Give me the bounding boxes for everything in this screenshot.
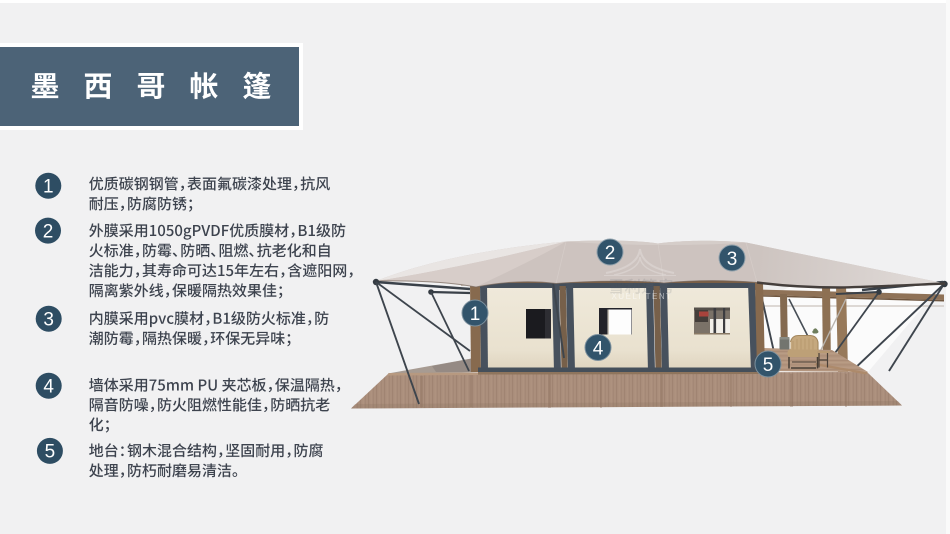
svg-text:5: 5 [45, 442, 56, 463]
svg-text:1: 1 [43, 177, 54, 198]
svg-text:2: 2 [605, 243, 616, 264]
svg-text:4: 4 [43, 377, 54, 398]
svg-text:2: 2 [43, 221, 54, 242]
svg-text:3: 3 [727, 249, 738, 270]
svg-text:3: 3 [43, 310, 54, 331]
svg-text:4: 4 [593, 338, 604, 359]
svg-text:5: 5 [763, 355, 774, 376]
svg-text:1: 1 [470, 304, 481, 325]
